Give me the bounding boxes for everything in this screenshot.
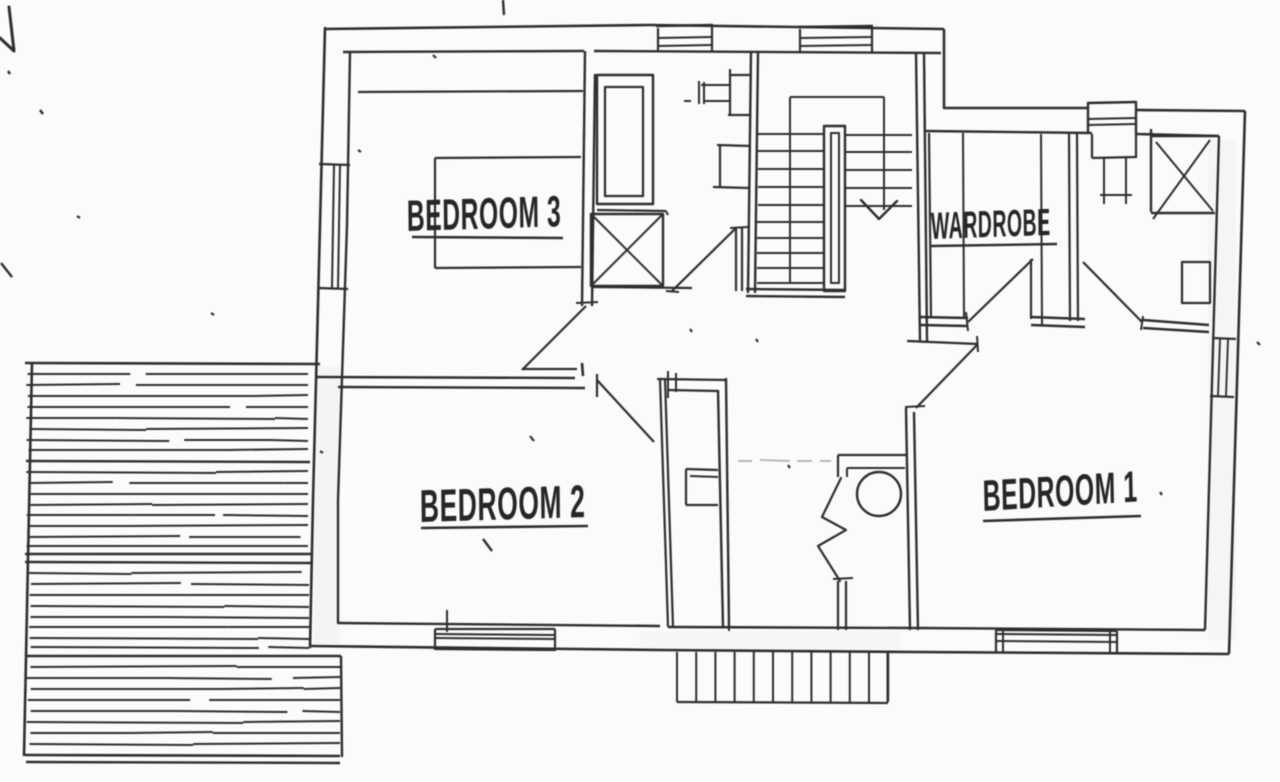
svg-text:BEDROOM 1: BEDROOM 1 [982, 462, 1138, 521]
svg-text:BEDROOM 2: BEDROOM 2 [420, 475, 586, 531]
svg-text:BEDROOM 3: BEDROOM 3 [407, 187, 562, 241]
svg-text:WARDROBE: WARDROBE [931, 202, 1051, 248]
